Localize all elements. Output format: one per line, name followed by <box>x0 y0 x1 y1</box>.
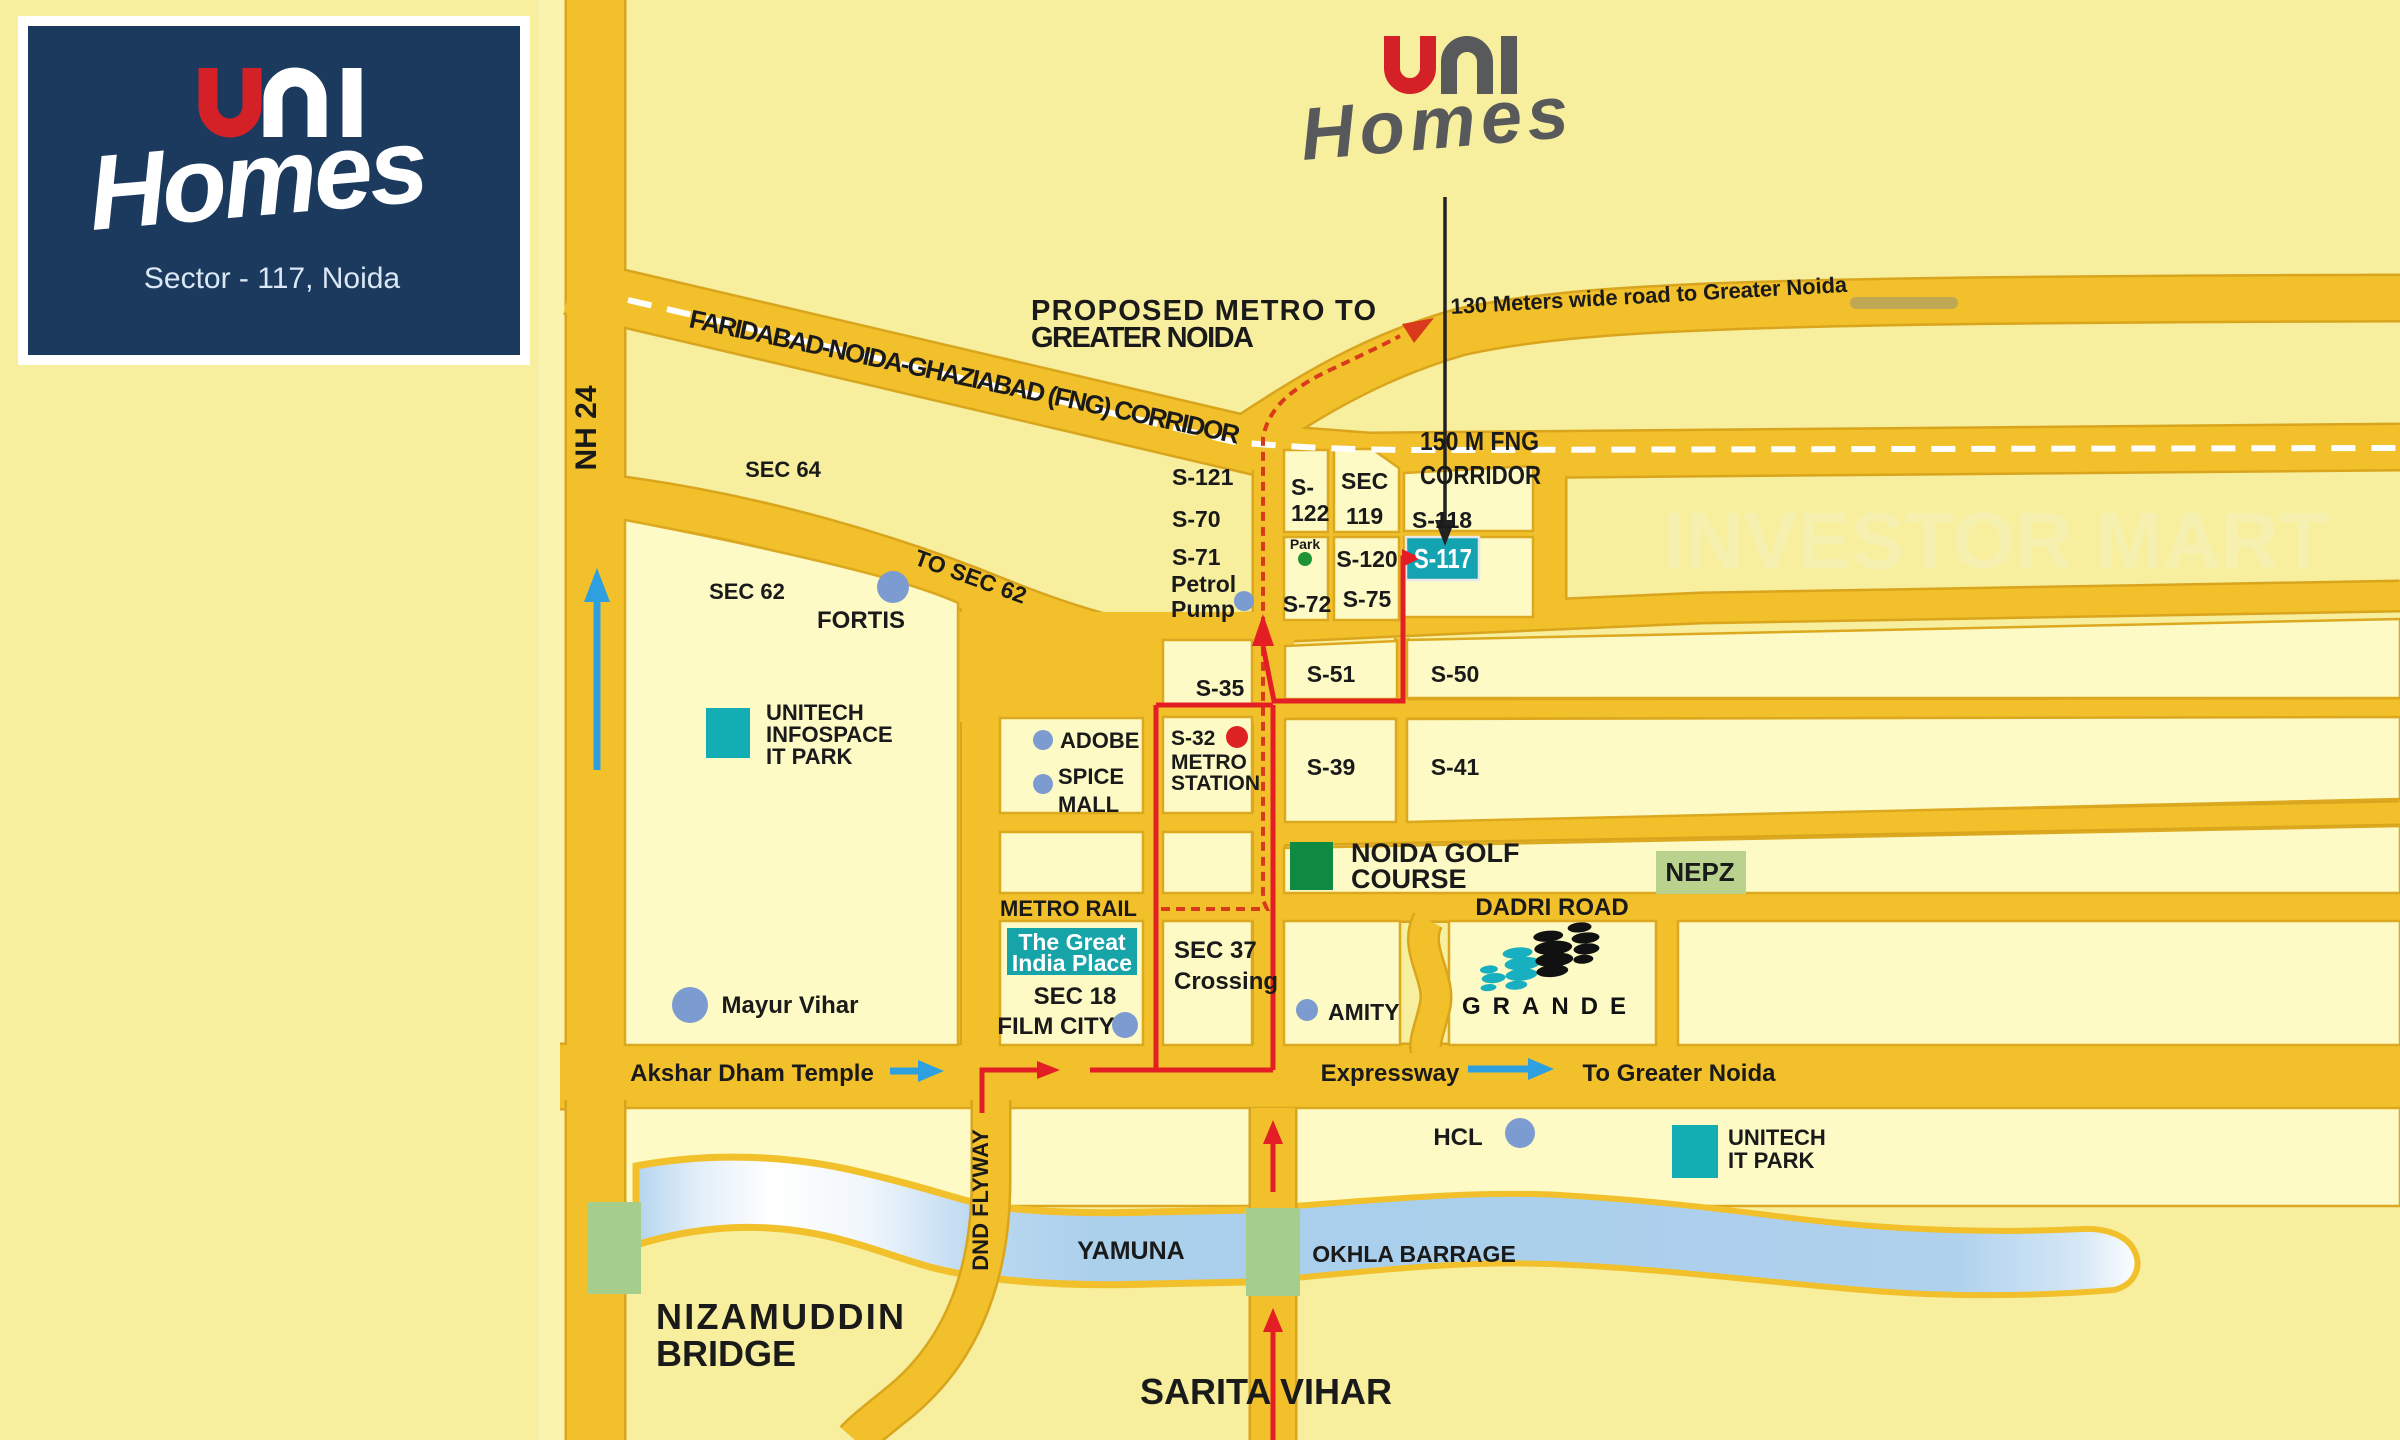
svg-text:S-71: S-71 <box>1172 544 1221 570</box>
svg-text:AMITY: AMITY <box>1328 999 1400 1025</box>
svg-text:Pump: Pump <box>1171 596 1235 622</box>
svg-text:S-118: S-118 <box>1412 507 1472 533</box>
svg-text:S-72: S-72 <box>1283 591 1332 617</box>
svg-text:S-75: S-75 <box>1343 586 1392 612</box>
svg-text:To Greater Noida: To Greater Noida <box>1583 1060 1777 1087</box>
svg-text:S-: S- <box>1291 474 1314 500</box>
svg-text:METRO: METRO <box>1171 751 1247 774</box>
svg-text:S-50: S-50 <box>1431 661 1480 687</box>
svg-text:S-41: S-41 <box>1431 754 1480 780</box>
svg-text:COURSE: COURSE <box>1351 864 1467 894</box>
svg-text:IT PARK: IT PARK <box>766 744 852 769</box>
svg-text:STATION: STATION <box>1171 772 1260 795</box>
svg-text:122: 122 <box>1291 500 1329 526</box>
svg-text:FORTIS: FORTIS <box>817 607 905 634</box>
svg-text:SEC 18: SEC 18 <box>1034 983 1117 1010</box>
svg-text:ADOBE: ADOBE <box>1060 728 1139 753</box>
svg-text:MALL: MALL <box>1058 792 1119 817</box>
svg-text:Petrol: Petrol <box>1171 571 1236 597</box>
svg-text:119: 119 <box>1346 503 1383 529</box>
svg-text:Sector - 117, Noida: Sector - 117, Noida <box>144 262 401 295</box>
svg-text:SPICE: SPICE <box>1058 764 1124 789</box>
svg-text:S-51: S-51 <box>1307 661 1356 687</box>
svg-text:SEC 37: SEC 37 <box>1174 937 1257 964</box>
svg-text:DADRI ROAD: DADRI ROAD <box>1475 894 1628 921</box>
svg-text:METRO RAIL: METRO RAIL <box>1000 896 1137 921</box>
svg-text:Akshar Dham Temple: Akshar Dham Temple <box>630 1060 874 1087</box>
svg-text:India Place: India Place <box>1012 950 1132 976</box>
svg-text:HCL: HCL <box>1433 1124 1482 1151</box>
svg-text:S-121: S-121 <box>1172 464 1234 490</box>
svg-text:GREATER NOIDA: GREATER NOIDA <box>1031 322 1254 354</box>
svg-text:Park: Park <box>1290 536 1321 552</box>
svg-text:INVESTOR MART: INVESTOR MART <box>1663 496 2328 585</box>
svg-text:S-117: S-117 <box>1414 543 1472 574</box>
svg-text:S-35: S-35 <box>1196 675 1245 701</box>
svg-text:Mayur Vihar: Mayur Vihar <box>722 992 859 1019</box>
svg-text:SARITA VIHAR: SARITA VIHAR <box>1140 1371 1392 1412</box>
svg-text:S-39: S-39 <box>1307 754 1356 780</box>
svg-text:SEC 64: SEC 64 <box>745 457 822 482</box>
svg-text:CORRIDOR: CORRIDOR <box>1420 460 1541 490</box>
svg-text:NH 24: NH 24 <box>570 385 603 470</box>
svg-text:S-70: S-70 <box>1172 506 1221 532</box>
svg-text:IT PARK: IT PARK <box>1728 1148 1814 1173</box>
svg-text:FILM CITY: FILM CITY <box>997 1013 1114 1040</box>
svg-text:YAMUNA: YAMUNA <box>1077 1237 1184 1265</box>
svg-text:DND FLYWAY: DND FLYWAY <box>968 1129 993 1271</box>
svg-text:150 M FNG: 150 M FNG <box>1420 426 1539 456</box>
svg-text:S-32: S-32 <box>1171 727 1215 750</box>
svg-text:OKHLA BARRAGE: OKHLA BARRAGE <box>1312 1241 1516 1267</box>
svg-text:S-120: S-120 <box>1336 546 1397 572</box>
svg-text:BRIDGE: BRIDGE <box>656 1333 796 1374</box>
svg-text:Crossing: Crossing <box>1174 968 1278 995</box>
svg-text:UNITECH: UNITECH <box>1728 1125 1826 1150</box>
svg-text:Expressway: Expressway <box>1321 1060 1460 1087</box>
svg-text:SEC: SEC <box>1341 468 1388 494</box>
svg-text:NEPZ: NEPZ <box>1665 857 1734 887</box>
svg-text:GRANDE: GRANDE <box>1462 993 1638 1020</box>
svg-text:SEC 62: SEC 62 <box>709 579 785 604</box>
